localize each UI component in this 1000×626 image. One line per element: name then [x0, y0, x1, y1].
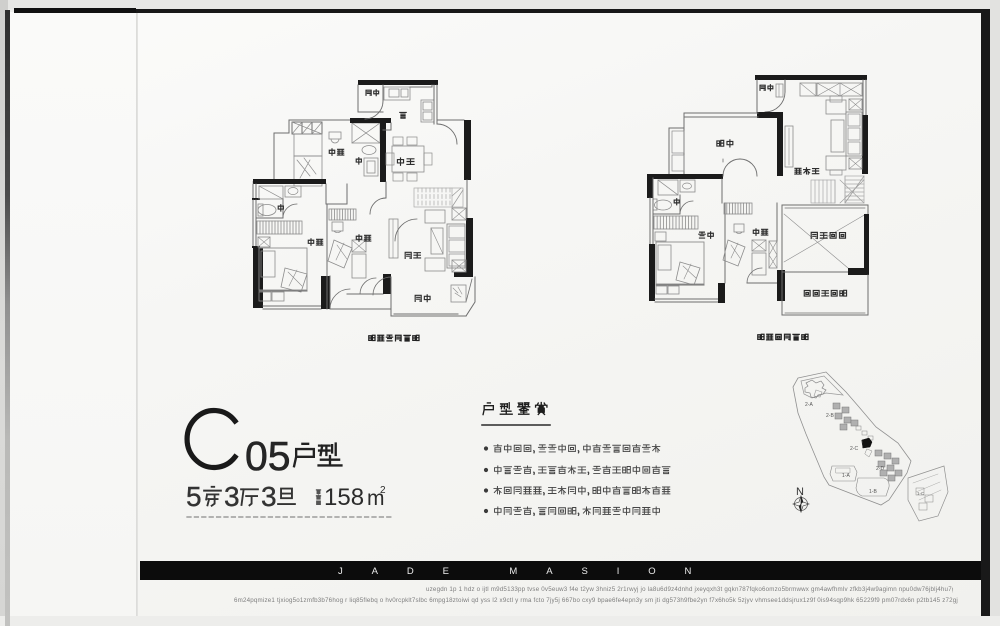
svg-text:2-C: 2-C — [850, 446, 858, 452]
svg-text:1-A: 1-A — [842, 473, 850, 479]
svg-text:2: 2 — [380, 485, 386, 496]
svg-text:1-C: 1-C — [917, 491, 925, 496]
svg-text:158: 158 — [324, 484, 364, 511]
svg-text:3: 3 — [224, 481, 240, 512]
svg-text:3: 3 — [261, 481, 277, 512]
svg-text:5: 5 — [186, 481, 202, 512]
svg-text:N: N — [796, 486, 804, 498]
svg-text:1-B: 1-B — [869, 489, 877, 495]
svg-text:05: 05 — [245, 433, 291, 479]
svg-text:2-D: 2-D — [876, 466, 884, 472]
svg-text:2-A: 2-A — [805, 402, 813, 408]
svg-text:2-B: 2-B — [826, 413, 834, 419]
